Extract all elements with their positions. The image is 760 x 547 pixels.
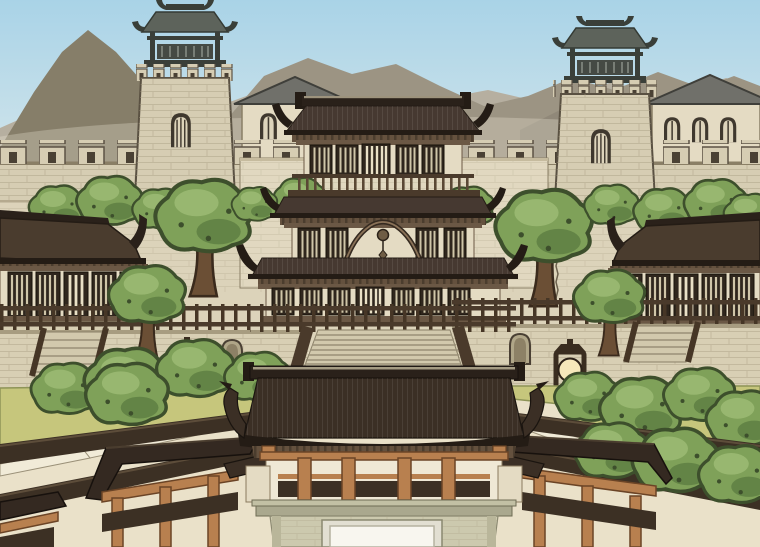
arched-window xyxy=(692,117,708,142)
gate-pillar xyxy=(398,458,411,500)
palace-illustration xyxy=(0,0,760,547)
arched-window xyxy=(720,117,736,142)
gate-pillar xyxy=(342,458,355,500)
gate-pillar xyxy=(298,458,311,500)
tower-window xyxy=(591,129,611,163)
tree xyxy=(86,363,169,424)
arched-window xyxy=(260,113,277,139)
tower-window xyxy=(171,113,191,147)
arched-window xyxy=(664,117,680,142)
scene-canvas xyxy=(0,0,760,547)
gate-pillar xyxy=(442,458,455,500)
